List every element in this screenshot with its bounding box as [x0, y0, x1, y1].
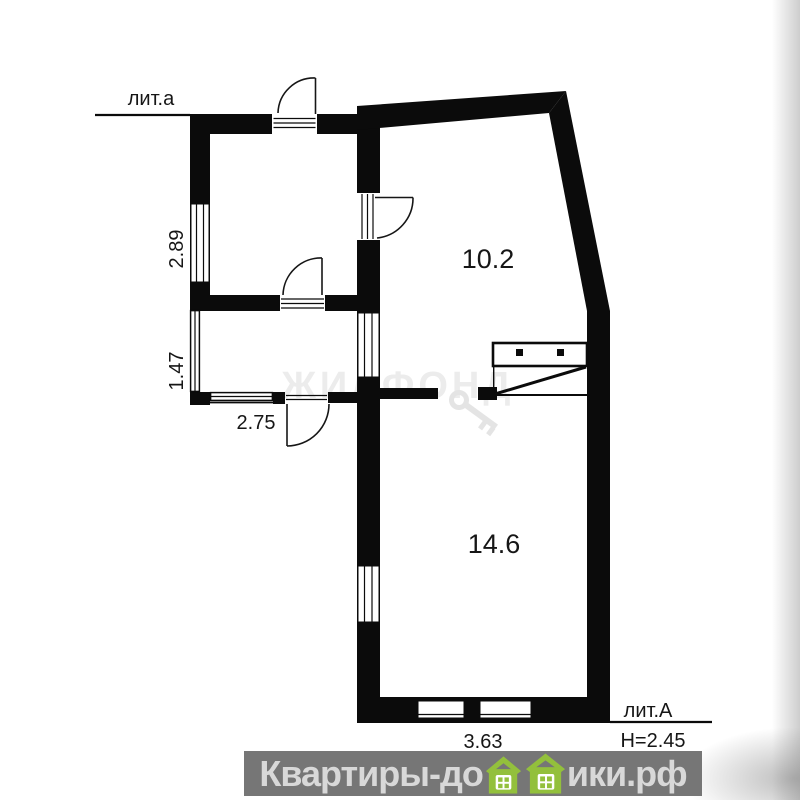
litera-reference-lines — [95, 115, 712, 722]
window-room-small-left — [191, 311, 200, 392]
litera-main-label: лит.А — [624, 700, 673, 722]
floor-plan-drawing: ЖИЛФОНД — [0, 0, 800, 800]
agency-watermark: ЖИЛФОНД — [281, 365, 515, 436]
litera-top-label: лит.а — [128, 88, 175, 110]
houses-logo-icon — [483, 752, 567, 796]
ceiling-height-label: H=2.45 — [620, 730, 685, 752]
window-bottom-1 — [418, 701, 465, 719]
scan-edge-shadow — [772, 0, 800, 800]
window-room-small-bottom — [210, 393, 273, 403]
threshold-entry-top — [274, 119, 316, 128]
door-between-left-rooms — [283, 258, 322, 295]
dim-363-label: 3.63 — [464, 731, 503, 753]
scan-corner-shadow — [685, 728, 800, 800]
door-entry-top — [278, 78, 316, 114]
floor-plan-page: ЖИЛФОНД — [0, 0, 800, 800]
window-partition-upper — [358, 313, 380, 378]
site-name-prefix: Квартиры-до — [259, 756, 483, 792]
window-bottom-2 — [480, 701, 532, 719]
dim-147-label: 1.47 — [166, 352, 188, 391]
window-room-top-left — [191, 204, 210, 283]
window-room-lower-left — [358, 566, 380, 623]
threshold-mid — [281, 299, 324, 308]
area-upper-room-label: 10.2 — [462, 244, 515, 274]
door-small-room-exit — [287, 404, 329, 446]
threshold-partition — [362, 194, 373, 239]
agency-watermark-text: ЖИЛФОНД — [281, 365, 515, 407]
site-name-suffix: ики.рф — [567, 756, 687, 792]
door-to-upper-room — [375, 198, 413, 239]
walls — [190, 91, 610, 723]
site-watermark-banner: Квартиры-до ики.рф — [244, 751, 702, 796]
dim-289-label: 2.89 — [166, 230, 188, 269]
area-lower-room-label: 14.6 — [468, 529, 521, 559]
dim-275-label: 2.75 — [237, 412, 276, 434]
